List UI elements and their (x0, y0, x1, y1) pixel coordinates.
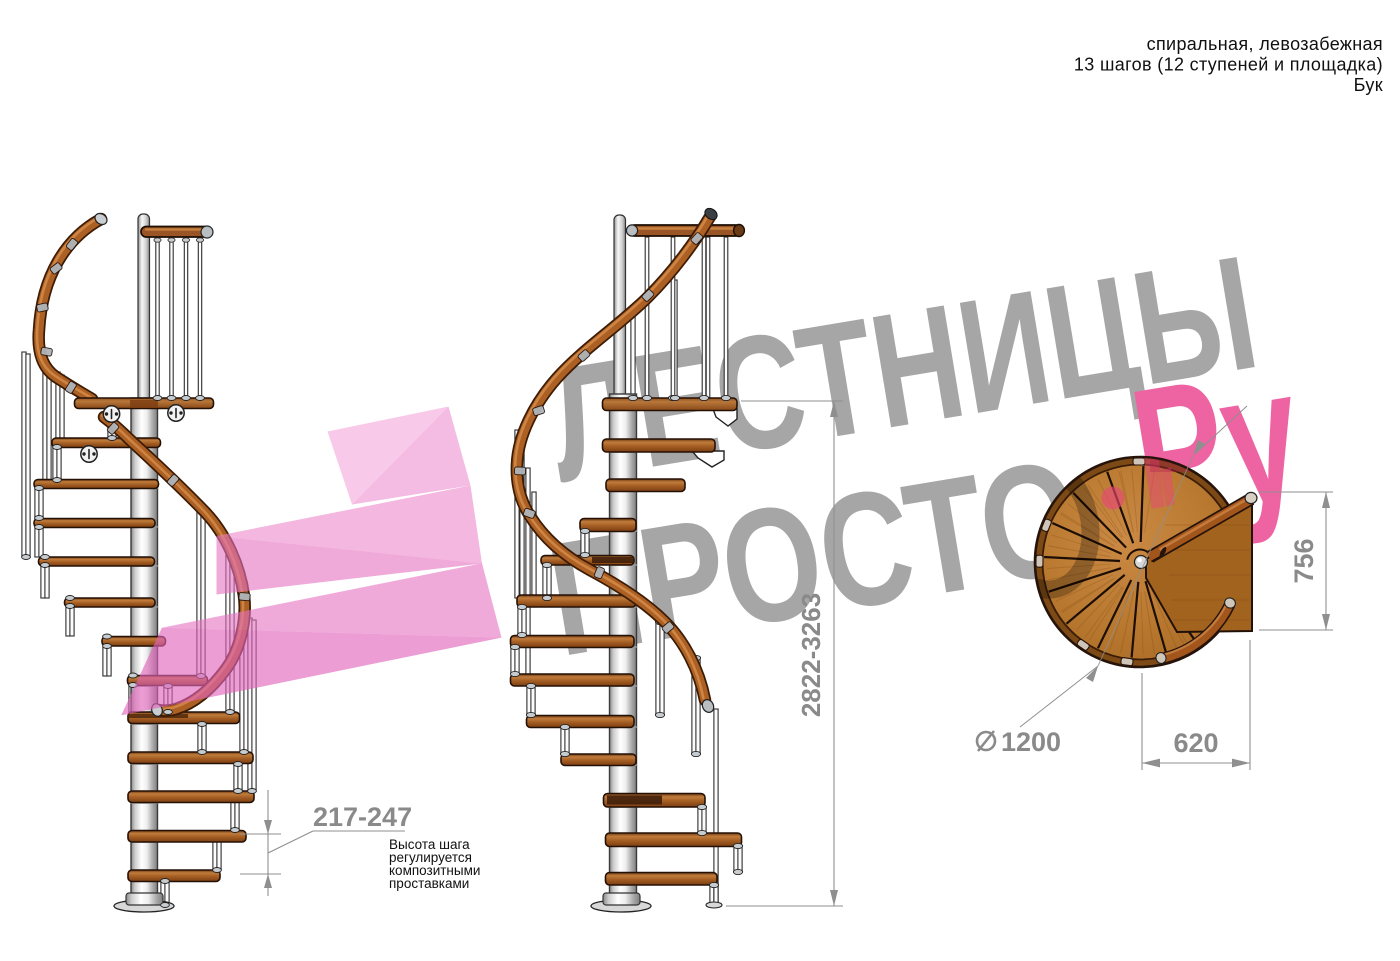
svg-text:13 шагов (12 ступеней и площад: 13 шагов (12 ступеней и площадка) (1074, 55, 1383, 75)
svg-text:620: 620 (1173, 728, 1218, 758)
svg-text:1200: 1200 (1001, 727, 1061, 757)
svg-text:756: 756 (1289, 538, 1319, 583)
svg-text:2822-3263: 2822-3263 (796, 593, 826, 717)
svg-text:217-247: 217-247 (313, 802, 412, 832)
svg-text:спиральная, левозабежная: спиральная, левозабежная (1147, 34, 1383, 54)
svg-text:Бук: Бук (1354, 75, 1383, 95)
